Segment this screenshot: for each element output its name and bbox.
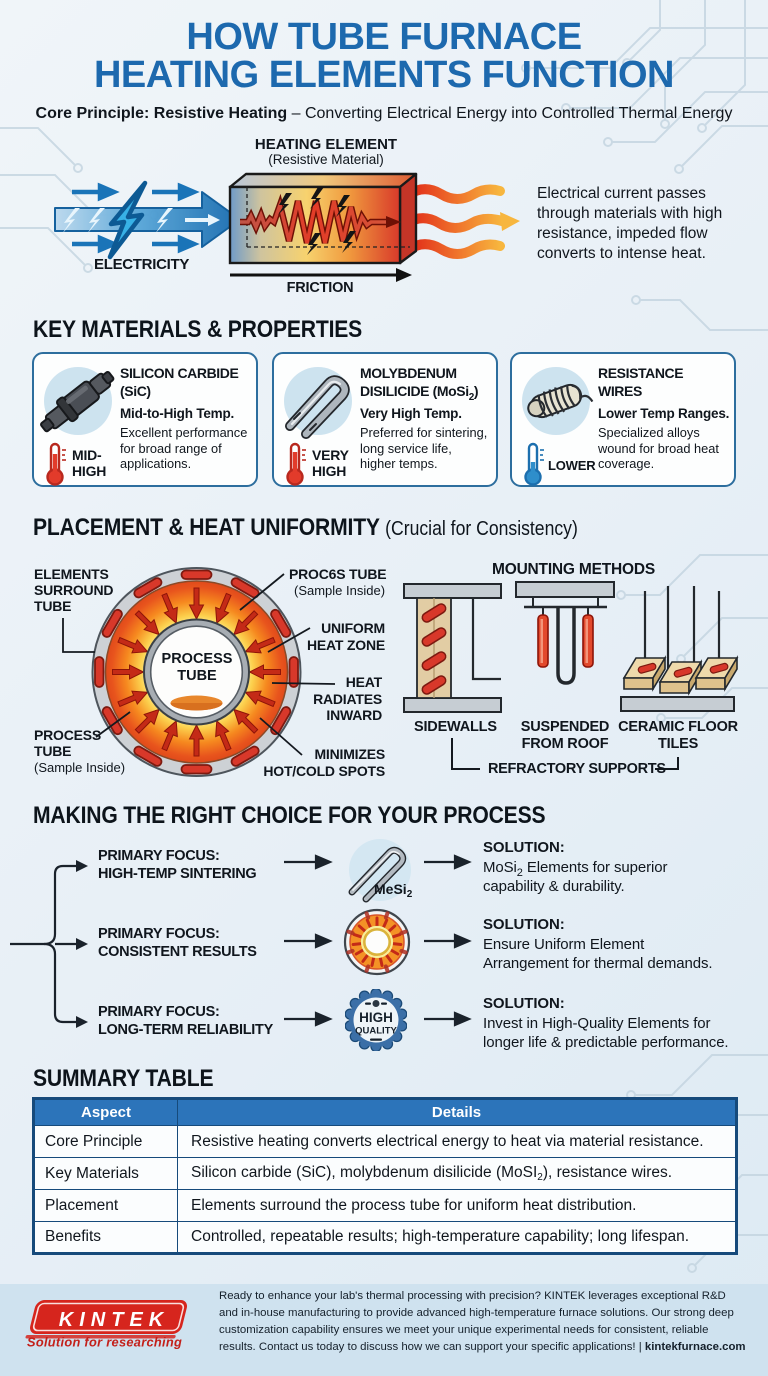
- svg-text:KINTEK: KINTEK: [59, 1309, 169, 1331]
- svg-text:HIGH: HIGH: [359, 1010, 393, 1025]
- svg-text:Solution for researching: Solution for researching: [27, 1335, 182, 1350]
- svg-text:QUALITY: QUALITY: [355, 1026, 397, 1037]
